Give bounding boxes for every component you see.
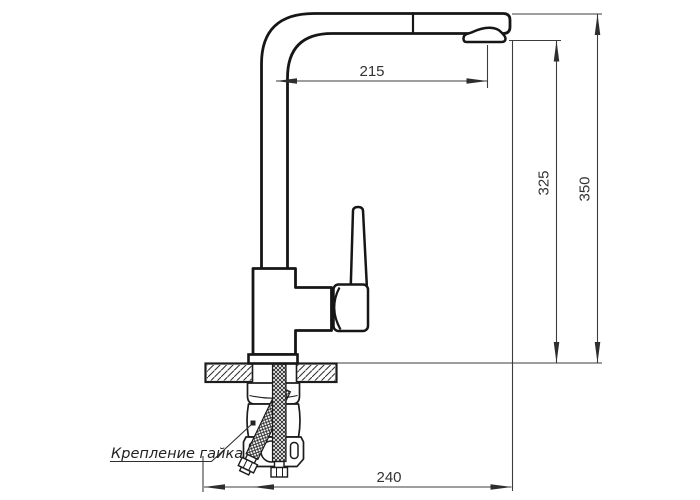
hose-fitting-collar: [275, 462, 285, 468]
nut-slot-right: [291, 443, 299, 459]
dim-label-215: 215: [359, 63, 384, 80]
mounting-nut-label: Крепление гайка: [111, 446, 243, 462]
arrow-down-icon: [554, 342, 560, 363]
base-flange: [249, 355, 298, 364]
leader-dot: [251, 421, 256, 426]
dimension-325: 325: [536, 41, 560, 364]
arrow-left-icon: [253, 484, 274, 490]
technical-drawing-page: 215 325 350 240 Крепление гайка: [0, 0, 700, 500]
dimension-215: 215: [276, 45, 488, 88]
arrow-right-icon: [467, 78, 488, 84]
dim-label-325: 325: [536, 170, 553, 195]
dim-label-240: 240: [376, 469, 401, 486]
countertop: [206, 362, 337, 385]
arrow-right-icon: [491, 484, 512, 490]
arrow-up-icon: [554, 41, 560, 62]
faucet-technical-drawing: 215 325 350 240 Крепление гайка: [0, 0, 700, 500]
extension-lines: [337, 14, 602, 491]
countertop-hatch-right: [298, 365, 336, 381]
faucet-body: [253, 269, 332, 355]
supply-hose-vertical: [271, 364, 288, 478]
faucet-spout-and-riser: [262, 14, 511, 270]
arrow-up-icon: [595, 14, 601, 35]
hose-braid-vertical: [273, 364, 287, 462]
dim-label-350: 350: [577, 176, 594, 201]
arrow-down-icon: [595, 342, 601, 363]
mounting-nut-leader: Крепление гайка: [110, 421, 256, 463]
hose-fitting-nut: [271, 468, 288, 478]
dimension-350: 350: [577, 14, 601, 363]
countertop-hatch-left: [207, 365, 252, 381]
handle-lever-stick: [351, 207, 367, 285]
arrow-left-icon: [204, 484, 225, 490]
